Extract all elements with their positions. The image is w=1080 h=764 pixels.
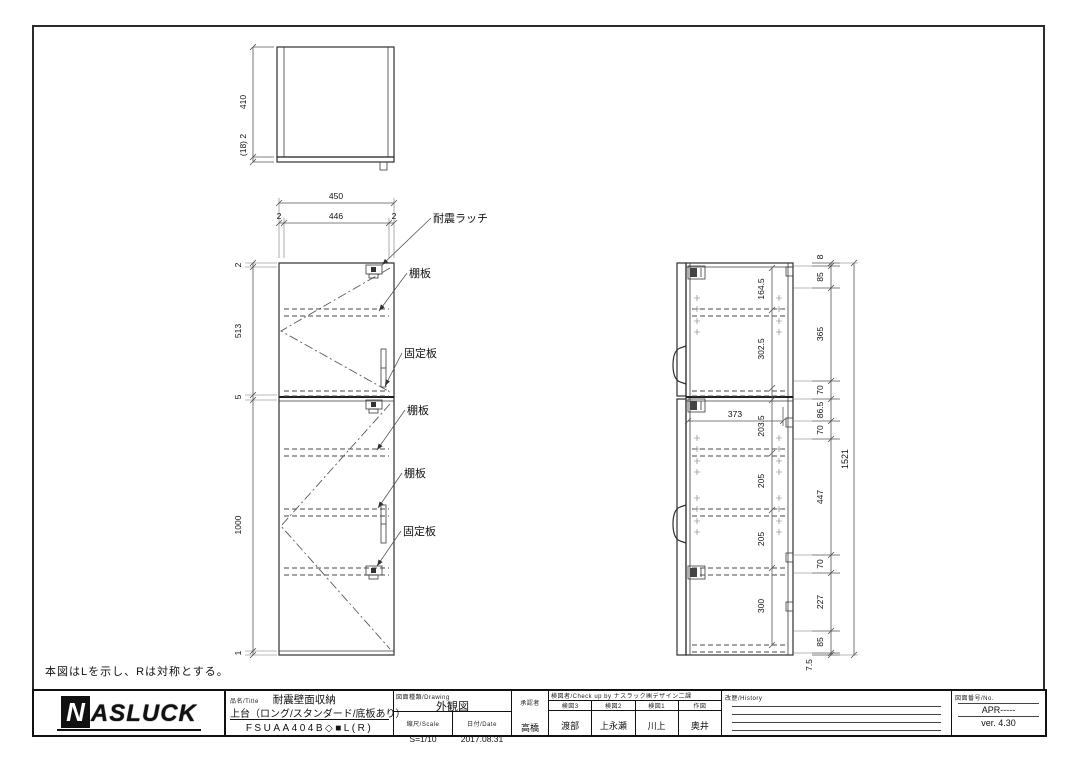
- door-handle: [673, 505, 686, 543]
- leader-shelf-2: 棚板: [407, 403, 429, 417]
- checker-name: 奥井: [679, 711, 721, 732]
- dim-front-w-left: 2: [277, 211, 282, 221]
- check-header: 検図者/Check up by ナスラック㈱デザイン二課: [549, 691, 721, 701]
- nasluck-logo: NASLUCK: [57, 696, 201, 731]
- dim-side-depth: 373: [728, 409, 742, 419]
- dim-side-right-7: 70: [815, 559, 825, 569]
- product-subtitle: 上台（ロング/スタンダード/底板あり）: [230, 705, 389, 720]
- scale-value: S=1/10: [396, 734, 450, 744]
- checker-name: 川上: [636, 711, 678, 732]
- dim-side-right-5: 70: [815, 425, 825, 435]
- dim-side-inner-3: 205: [756, 474, 766, 488]
- dim-side-right-4: 86.5: [815, 401, 825, 418]
- history-rule: [732, 722, 941, 723]
- dim-side-right-3: 70: [815, 385, 825, 395]
- drawing-sheet: 410 (18) 2: [0, 0, 1080, 764]
- shelf-pin-holes: [694, 295, 700, 535]
- back-fitting: [786, 418, 793, 427]
- dim-side-right-1: 85: [815, 272, 825, 282]
- title-label: 品名/Title: [230, 696, 259, 705]
- date-label: 日付/Date: [467, 722, 497, 728]
- dim-side-right-10: 7.5: [804, 659, 814, 671]
- version: ver. 4.30: [952, 718, 1045, 728]
- dim-side-inner-2: 203.5: [756, 415, 766, 437]
- logo-cell: NASLUCK: [34, 691, 226, 735]
- latch-symbol: [366, 400, 382, 413]
- logo-letter-n: N: [61, 696, 90, 728]
- dim-side-inner-0: 164.5: [756, 278, 766, 300]
- door-handle: [673, 346, 686, 384]
- history-label: 改歴/History: [725, 693, 762, 702]
- scale-label: 縮尺/Scale: [407, 722, 440, 728]
- drawing-number: APR-----: [952, 705, 1045, 715]
- latch-symbol: [366, 265, 382, 278]
- dim-side-right-0: 8: [815, 254, 825, 259]
- checker-label: 検図3: [549, 701, 591, 711]
- history-rule: [732, 714, 941, 715]
- drawing-label: 図面種類/Drawing: [396, 692, 450, 701]
- checker-label: 検図1: [636, 701, 678, 711]
- dim-front-h-3: 1000: [233, 515, 243, 534]
- history-cell: 改歴/History: [722, 691, 952, 735]
- product-title-cell: 品名/Title 耐震壁面収納 上台（ロング/スタンダード/底板あり） FSUA…: [226, 691, 394, 735]
- drawing-type-cell: 図面種類/Drawing 外観図 縮尺/Scale S=1/10 日付/Date…: [394, 691, 512, 735]
- date-value: 2017.08.31: [455, 734, 509, 744]
- dim-front-h-4: 1: [233, 650, 243, 655]
- dim-side-right-9: 85: [815, 637, 825, 647]
- leader-shelf-1: 棚板: [409, 266, 431, 280]
- dim-front-width: 450: [329, 191, 343, 201]
- number-label: 図面番号/No.: [952, 691, 1045, 702]
- dim-front-h-1: 513: [233, 324, 243, 338]
- dim-side-inner-1: 302.5: [756, 338, 766, 360]
- mirror-note: 本図はLを示し、Rは対称とする。: [45, 663, 229, 679]
- checker-label: 作図: [679, 701, 721, 711]
- top-view: 410 (18) 2: [238, 44, 394, 170]
- leader-fixed-2: 固定板: [403, 524, 436, 538]
- history-rule: [732, 730, 941, 731]
- checker-column: 検図2 上永瀬: [592, 701, 635, 736]
- leader-latch: 耐震ラッチ: [433, 212, 488, 225]
- dim-side-right-6: 447: [815, 490, 825, 504]
- leader-fixed-1: 固定板: [404, 346, 437, 360]
- checker-name: 上永瀬: [592, 711, 634, 732]
- drawing-number-cell: 図面番号/No. APR----- ver. 4.30: [952, 691, 1045, 735]
- door-swing-bottom: [281, 404, 390, 649]
- checker-column: 作図 奥井: [679, 701, 721, 736]
- approval-name: 高橋: [512, 721, 548, 734]
- dim-top-depth: 410: [238, 95, 248, 109]
- number-rule: [958, 716, 1039, 717]
- dim-side-inner-5: 300: [756, 599, 766, 613]
- title-block: NASLUCK 品名/Title 耐震壁面収納 上台（ロング/スタンダード/底板…: [32, 689, 1047, 737]
- dim-front-h-2: 5: [233, 394, 243, 399]
- fixed-plate: [381, 505, 386, 543]
- dim-front-w-right: 2: [392, 211, 397, 221]
- checker-label: 検図2: [592, 701, 634, 711]
- back-fitting: [786, 553, 793, 562]
- front-view: 450 2 446 2 2 513 5 1000 1 耐震ラッチ 棚板 固定板 …: [233, 191, 488, 658]
- number-rule: [958, 703, 1039, 704]
- leader-shelf-3: 棚板: [404, 466, 426, 480]
- back-fitting: [786, 267, 793, 276]
- drawing-canvas: 410 (18) 2: [0, 0, 1080, 764]
- dim-side-total: 1521: [840, 449, 850, 469]
- shelf-pin-holes: [776, 295, 782, 535]
- checker-column: 検図3 渡部: [549, 701, 592, 736]
- dim-side-inner-4: 205: [756, 532, 766, 546]
- history-rule: [732, 706, 941, 707]
- approval-cell: 承認者 高橋: [512, 691, 549, 735]
- dim-side-right-2: 365: [815, 327, 825, 341]
- dim-front-h-0: 2: [233, 262, 243, 267]
- dim-front-w-center: 446: [329, 211, 343, 221]
- checker-name: 渡部: [549, 711, 591, 732]
- dim-top-base: (18) 2: [238, 134, 248, 156]
- door-swing-top: [281, 268, 390, 392]
- model-code: FSUAA404B◇■L(R): [230, 723, 389, 734]
- latch-bracket: [688, 266, 705, 279]
- logo-rest: ASLUCK: [91, 700, 197, 727]
- checker-column: 検図1 川上: [636, 701, 679, 736]
- side-view: 164.5 302.5 203.5 205 205 300 373 8 85 3…: [673, 254, 858, 671]
- checkers-cell: 検図者/Check up by ナスラック㈱デザイン二課 検図3 渡部 検図2 …: [549, 691, 722, 735]
- approval-label: 承認者: [520, 701, 540, 707]
- dim-side-right-8: 227: [815, 595, 825, 609]
- fixed-plate: [381, 349, 386, 387]
- back-fitting: [786, 602, 793, 611]
